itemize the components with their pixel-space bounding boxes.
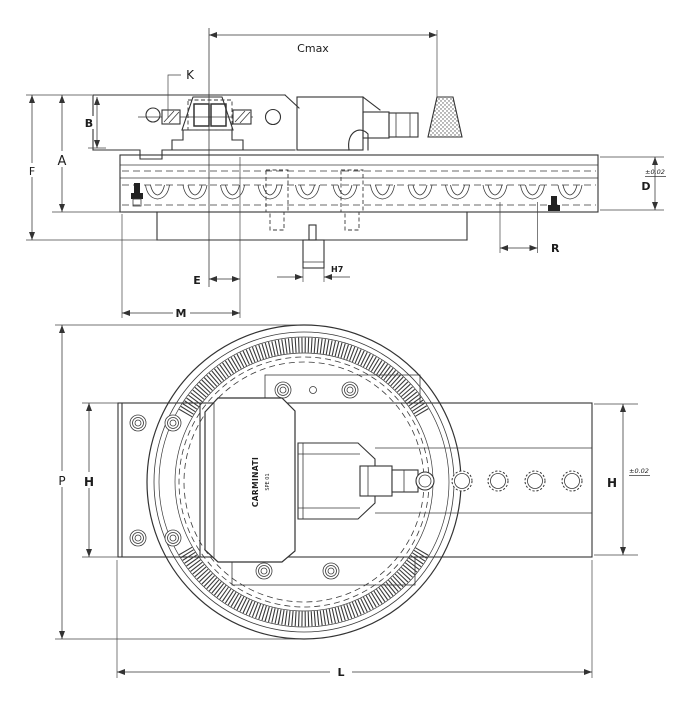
locating-tenon: [303, 225, 324, 268]
label-h-tolerance: ±0.02: [629, 467, 649, 475]
brand-model: SPE 01: [265, 473, 271, 490]
jaw-hole-left: [146, 108, 160, 122]
dim-d: D ±0.02: [600, 157, 666, 210]
label-e: E: [193, 274, 201, 287]
detent-cups-outer: [146, 185, 583, 199]
brand-name: CARMINATI: [251, 457, 260, 507]
pin-hole: [310, 387, 317, 394]
mounting-plate-holes: [130, 415, 181, 546]
moving-jaw-body: [297, 97, 380, 150]
handle-ear: [349, 130, 368, 150]
dim-cmax: Cmax: [209, 30, 437, 97]
counterbored-hole: [275, 382, 291, 398]
label-h-left: H: [84, 475, 94, 489]
label-b: B: [85, 117, 93, 130]
label-p: P: [58, 474, 65, 488]
clamp-bolt-right: [548, 196, 560, 211]
fixed-jaw-plan: CARMINATI SPE 01: [205, 398, 295, 562]
swivel-base-side: [157, 212, 467, 240]
counterbored-hole: [323, 563, 339, 579]
guide-rail: [120, 155, 598, 230]
label-k: K: [186, 68, 195, 82]
spindle-plan: [360, 466, 434, 496]
label-cmax: Cmax: [297, 42, 329, 55]
threaded-hole: [562, 471, 582, 491]
label-m: M: [176, 307, 187, 320]
dim-h-left: H: [81, 403, 118, 557]
label-h7: H7: [331, 265, 343, 274]
dim-a: A: [52, 95, 122, 212]
label-f: F: [29, 165, 35, 178]
label-h-right: H: [607, 476, 617, 490]
label-d-tolerance: ±0.02: [645, 168, 665, 176]
dim-m: M: [122, 214, 240, 320]
top-strip-holes: [275, 382, 358, 398]
hidden-bolt-right: [341, 170, 363, 230]
bottom-strip-holes: [256, 563, 339, 579]
screw-end-left: [162, 110, 180, 124]
dim-e: E: [193, 157, 240, 287]
rail-holes: [452, 471, 582, 491]
dim-h-right: H ±0.02: [594, 404, 650, 555]
hidden-bolt-left: [266, 170, 288, 230]
label-l: L: [337, 666, 344, 679]
threaded-hole: [525, 471, 545, 491]
stop-wedge: [428, 97, 462, 137]
counterbored-hole: [165, 530, 181, 546]
detent-cups-inner: [151, 185, 578, 195]
threaded-hole: [488, 471, 508, 491]
screw-end-right: [233, 110, 251, 124]
counterbored-hole: [130, 415, 146, 431]
clamp-bolt-left: [131, 183, 143, 206]
counterbored-hole: [130, 530, 146, 546]
counterbored-hole: [165, 415, 181, 431]
clamp-nut-right: [211, 104, 226, 126]
clamp-assembly: [138, 97, 253, 150]
plan-view: CARMINATI SPE 01: [54, 325, 650, 679]
label-a: A: [58, 154, 67, 169]
clamp-nut-left: [194, 104, 209, 126]
vise-drawing-svg: Cmax K F A B D: [0, 0, 673, 714]
dim-b: B: [82, 97, 106, 148]
counterbored-hole: [256, 563, 272, 579]
spindle-shaft: [363, 112, 418, 138]
threaded-hole: [452, 471, 472, 491]
label-r: R: [551, 242, 560, 255]
label-d: D: [641, 180, 650, 193]
side-view: Cmax K F A B D: [24, 28, 666, 320]
counterbored-hole: [342, 382, 358, 398]
technical-drawing-page: Cmax K F A B D: [0, 0, 673, 714]
jaw-hole-right: [266, 110, 281, 125]
